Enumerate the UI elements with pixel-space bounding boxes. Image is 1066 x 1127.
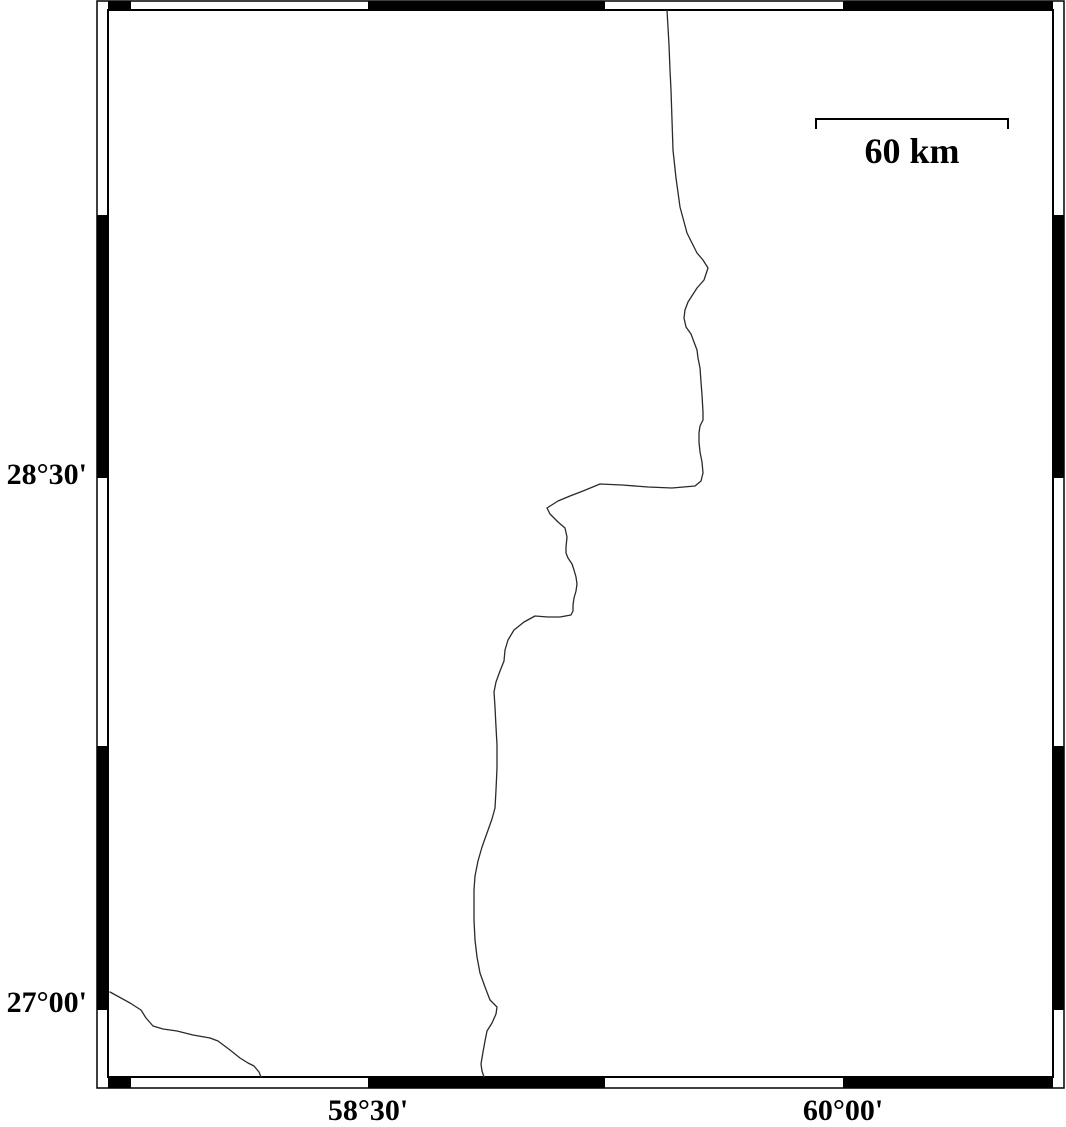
frame-tick-top — [108, 1, 131, 10]
scale-bar — [816, 119, 1008, 129]
frame-tick-left — [97, 215, 108, 478]
scale-bar-label: 60 km — [864, 133, 959, 169]
frame-tick-right — [1053, 215, 1064, 478]
longitude-label-60-00: 60°00' — [803, 1096, 883, 1126]
longitude-label-58-30: 58°30' — [328, 1096, 408, 1126]
frame-tick-bottom — [843, 1077, 1053, 1088]
frame-tick-top — [368, 1, 605, 10]
latitude-label-27-00: 27°00' — [7, 988, 87, 1018]
main-boundary-line — [474, 10, 708, 1077]
map-figure: 28°30' 27°00' 58°30' 60°00' 60 km — [0, 0, 1066, 1127]
southwest-boundary-line — [110, 992, 261, 1077]
latitude-label-28-30: 28°30' — [7, 460, 87, 490]
frame-tick-bottom — [108, 1077, 131, 1088]
frame-tick-top — [843, 1, 1053, 10]
frame-tick-right — [1053, 746, 1064, 1010]
frame-tick-left — [97, 746, 108, 1010]
frame-tick-bottom — [368, 1077, 605, 1088]
